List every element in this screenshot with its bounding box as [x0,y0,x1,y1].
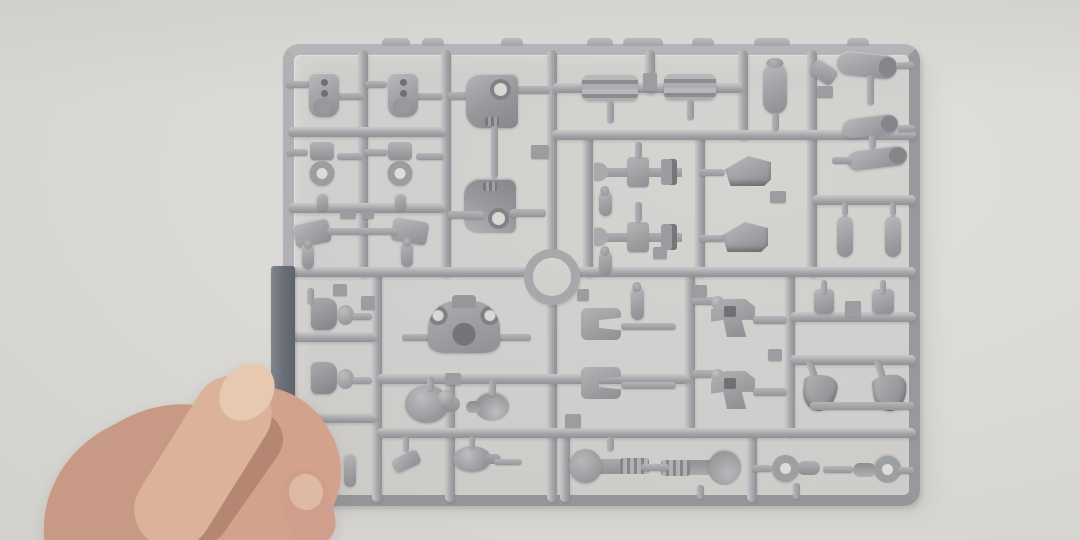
hand [0,0,1080,540]
photo [0,0,1080,540]
